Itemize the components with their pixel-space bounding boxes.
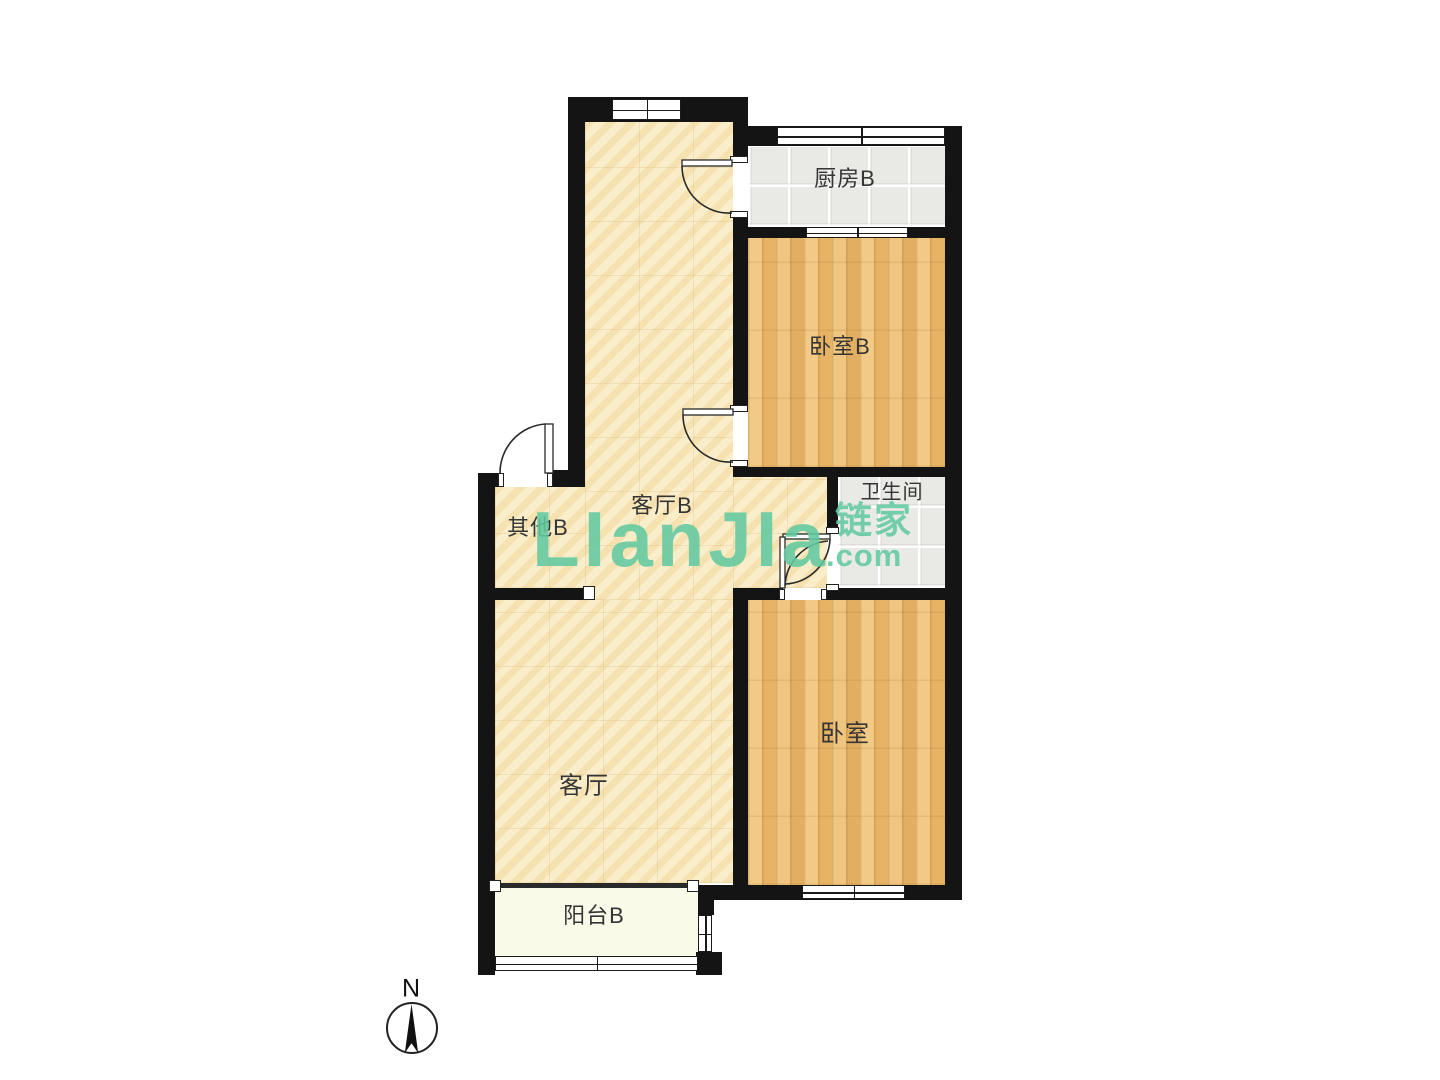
door-leaf [683,409,733,415]
room-label-bedroom-b: 卧室B [809,329,871,361]
door-leaf [682,160,732,166]
lianjia-watermark-cn: 链家 [835,502,913,539]
floor-plan: 厨房B 卧室B 卫生间 客厅B 其他B 客厅 卧室 阳台B LIanJIa 链家… [0,0,1440,1080]
door-arc [683,415,733,462]
room-label-living-room: 客厅 [559,766,609,801]
room-label-bedroom: 卧室 [820,714,870,749]
door-arc [500,424,545,473]
entry-door-leaf [545,424,553,473]
room-label-kitchen-b: 厨房B [814,161,876,193]
lianjia-watermark-logo: LIanJIa [532,500,829,578]
lianjia-watermark-com: .com [826,540,902,571]
compass-north-label: N [402,975,420,1004]
room-label-balcony-b: 阳台B [563,898,625,930]
door-arc [682,166,732,213]
